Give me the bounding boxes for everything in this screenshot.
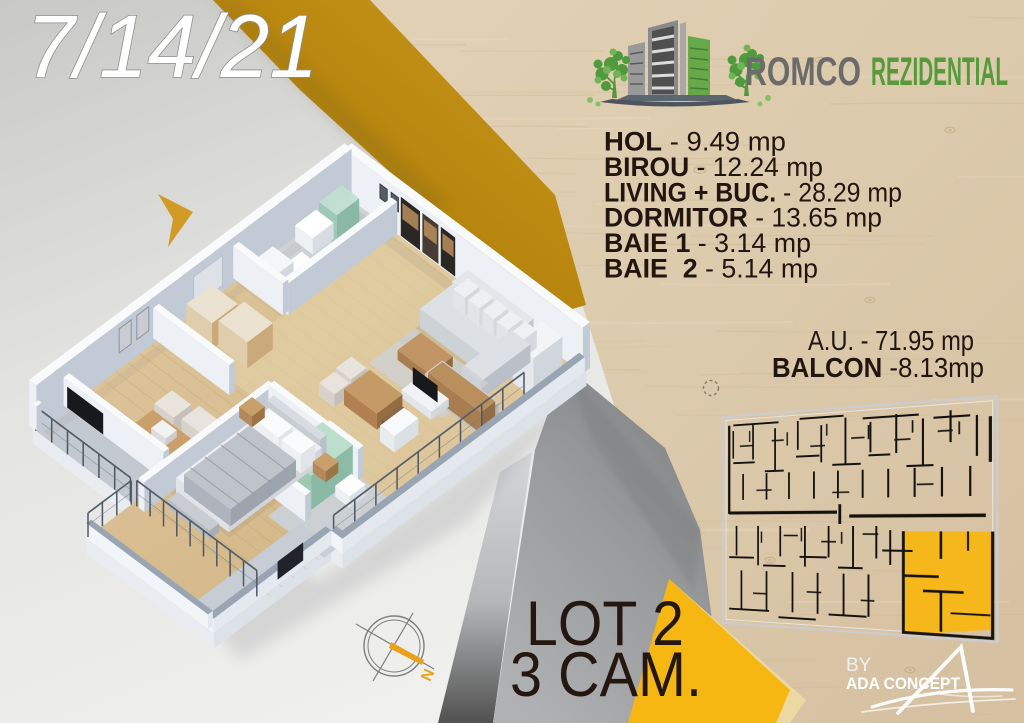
svg-text:BY: BY	[846, 655, 872, 676]
svg-text:REZIDENTIAL: REZIDENTIAL	[871, 50, 1008, 94]
svg-text:BALCON -8.13mp: BALCON -8.13mp	[772, 352, 984, 383]
svg-text:ADA CONCEPT: ADA CONCEPT	[846, 675, 960, 693]
svg-text:ROMCO: ROMCO	[745, 50, 861, 94]
svg-text:7/14/21: 7/14/21	[26, 0, 318, 96]
svg-text:3 CAM.: 3 CAM.	[510, 640, 702, 710]
svg-text:BAIE 2 - 5.14 mp: BAIE 2 - 5.14 mp	[604, 254, 818, 284]
